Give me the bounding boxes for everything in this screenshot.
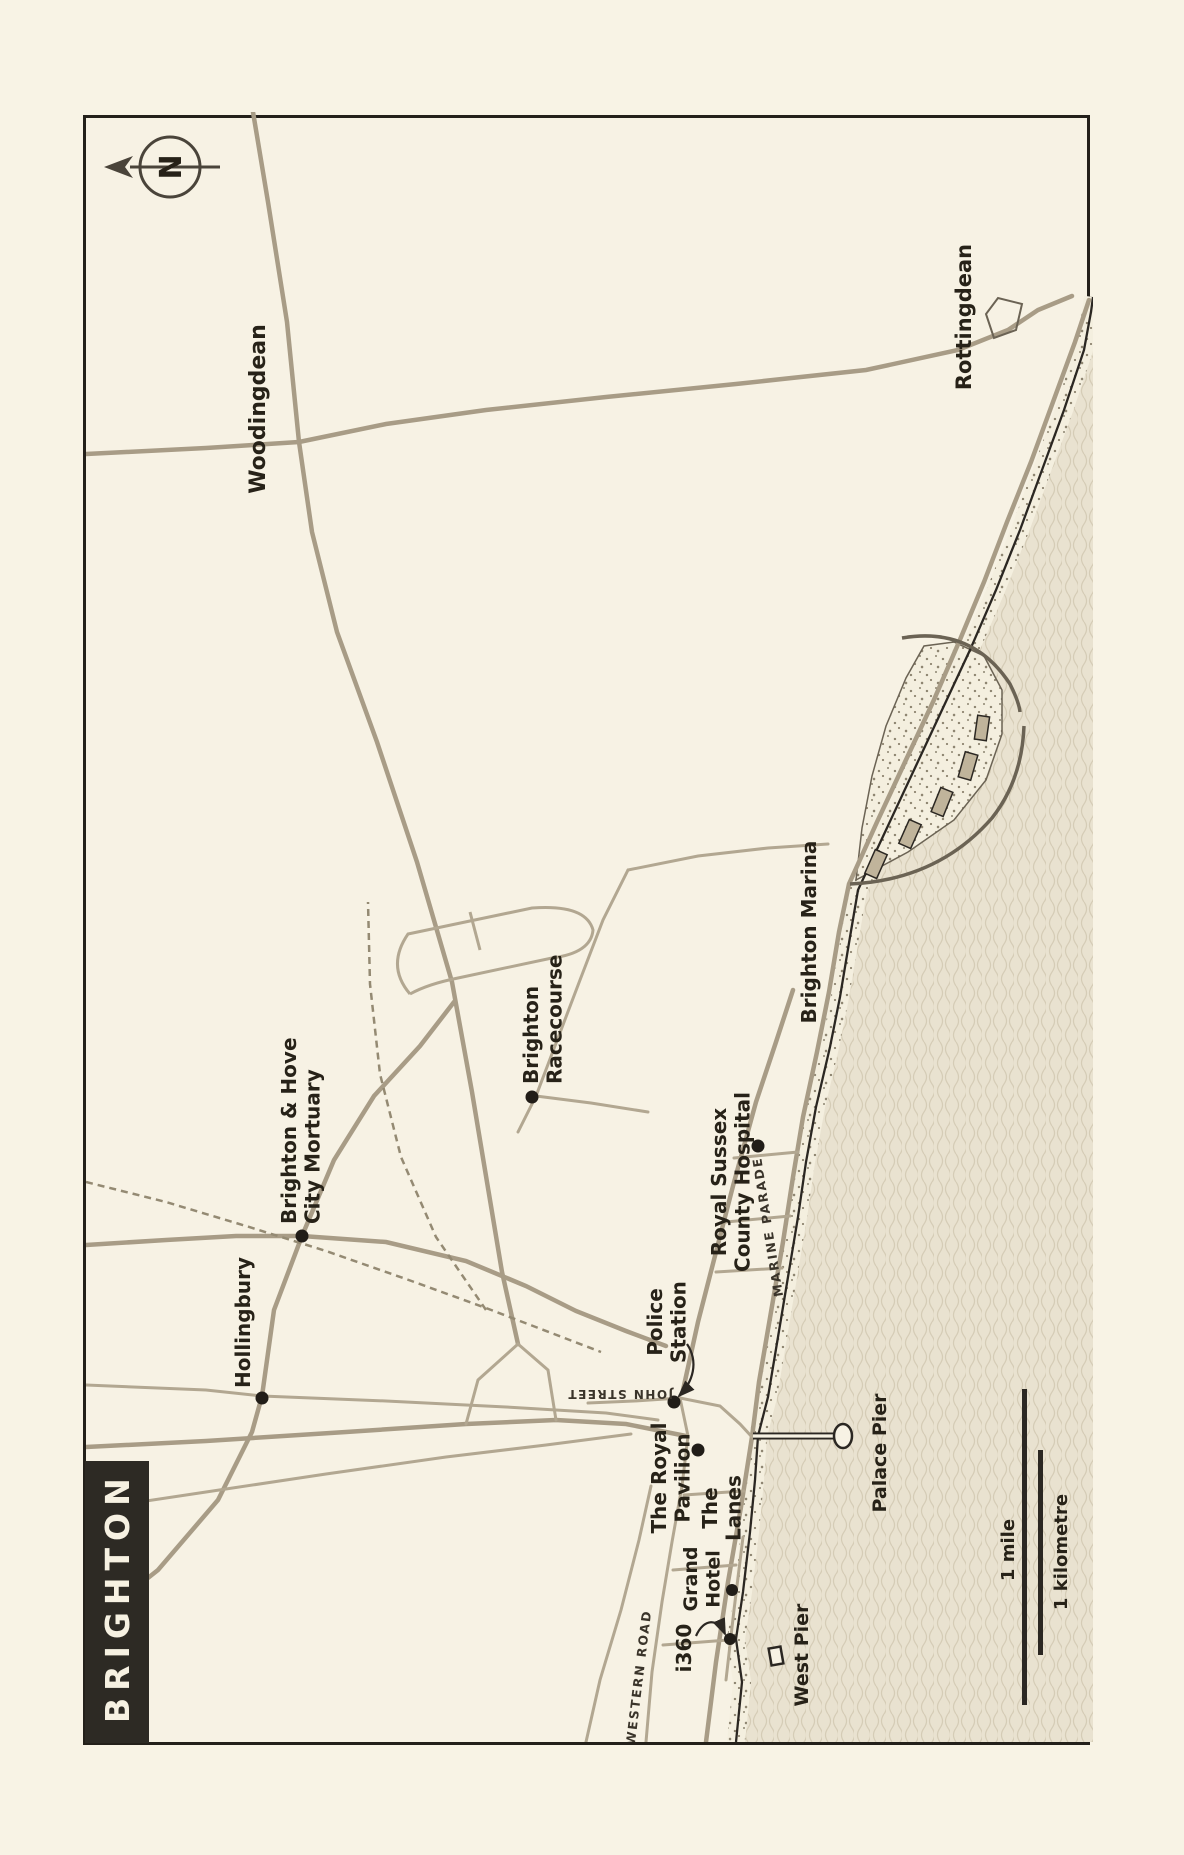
road-major-4 xyxy=(86,1420,686,1447)
i360-marker xyxy=(724,1633,736,1645)
royal-pavilion-label: The RoyalPavilion xyxy=(647,1423,695,1534)
grand-hotel-label: GrandHotel xyxy=(680,1547,724,1612)
brighton-map-canvas: 1 mile1 kilometreWoodingdeanRottingdeanH… xyxy=(86,112,1093,1742)
road-minor-1 xyxy=(86,1434,631,1510)
scanned-page: 1 mile1 kilometreWoodingdeanRottingdeanH… xyxy=(0,0,1184,1855)
palace-pier-head xyxy=(834,1424,852,1448)
scale-label-mile: 1 mile xyxy=(998,1519,1019,1581)
western-road-label: WESTERN ROAD xyxy=(623,1609,655,1742)
hospital-label: Royal SussexCounty Hospital xyxy=(707,1092,755,1272)
railway-line-1 xyxy=(368,902,486,1310)
marine-parade-label: MARINE PARADE xyxy=(749,1156,786,1298)
north-arrow-head xyxy=(104,156,133,178)
scale-label-km: 1 kilometre xyxy=(1051,1494,1072,1610)
road-minor-18 xyxy=(680,1398,688,1436)
map-frame: 1 mile1 kilometreWoodingdeanRottingdeanH… xyxy=(83,115,1090,1745)
scale-bar-mile xyxy=(1022,1389,1027,1705)
railway-line-0 xyxy=(86,1182,601,1352)
west-pier-label: West Pier xyxy=(791,1603,813,1706)
woodingdean-label: Woodingdean xyxy=(246,324,271,494)
the-lanes-label: TheLanes xyxy=(698,1475,746,1541)
brighton-marina-label: Brighton Marina xyxy=(797,841,821,1024)
road-major-6 xyxy=(86,1236,666,1346)
hollingbury-marker xyxy=(256,1392,269,1405)
north-label: N xyxy=(154,154,189,179)
west-pier-symbol xyxy=(769,1647,784,1666)
racecourse-marker xyxy=(526,1091,539,1104)
i360-label: i360 xyxy=(672,1624,696,1673)
north-arrow: N xyxy=(104,137,220,197)
road-minor-9 xyxy=(466,1344,518,1424)
mortuary-label: Brighton & HoveCity Mortuary xyxy=(277,1037,325,1224)
map-title: BRIGHTON xyxy=(98,1471,137,1723)
john-street-label: JOHN STREET xyxy=(567,1387,674,1401)
rottingdean-label: Rottingdean xyxy=(952,244,976,390)
marina-building-4 xyxy=(974,715,989,740)
police-station-label: PoliceStation xyxy=(643,1281,691,1363)
grand-hotel-marker xyxy=(726,1584,738,1596)
mortuary-marker xyxy=(296,1230,309,1243)
hollingbury-label: Hollingbury xyxy=(231,1257,255,1388)
road-minor-14 xyxy=(680,1398,752,1437)
road-minor-13 xyxy=(536,1096,648,1112)
racecourse-label: BrightonRacecourse xyxy=(519,955,567,1084)
palace-pier-label: Palace Pier xyxy=(869,1393,891,1513)
scale-bar-km xyxy=(1038,1450,1043,1655)
map-title-box: BRIGHTON xyxy=(85,1461,149,1743)
